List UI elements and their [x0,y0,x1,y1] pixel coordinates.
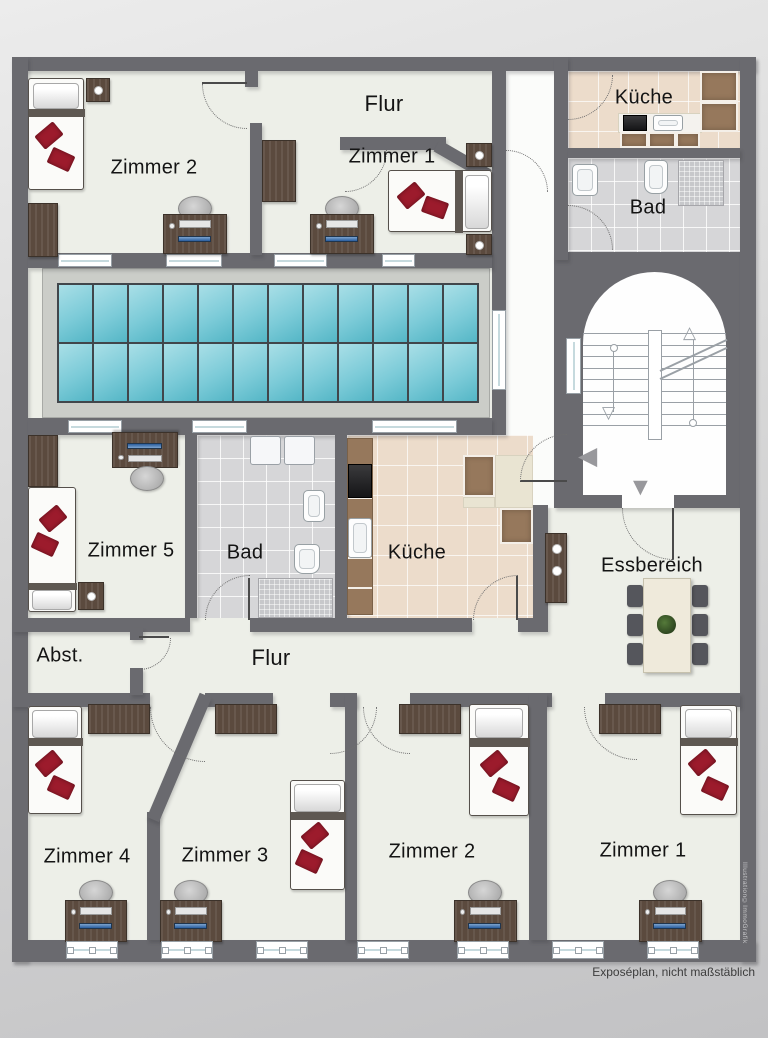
wall [335,435,347,618]
room-label-zimmer2-top: Zimmer 2 [111,157,198,180]
skylight-panel [199,285,232,342]
room-label-bad-mid: Bad [227,542,264,565]
room-label-zimmer1-top: Zimmer 1 [349,146,436,169]
dining-chair [627,585,643,607]
wardrobe [88,704,150,734]
window [256,941,308,959]
kitchen-counter [463,497,495,508]
bed [28,706,82,814]
dining-chair [692,614,708,636]
wall [12,618,190,632]
window [382,254,415,267]
wall [740,57,756,962]
skylight-panel [94,285,127,342]
wall [185,435,197,618]
wall [130,668,143,695]
skylight-panel [339,285,372,342]
shower-icon [678,160,724,206]
stairs-down-arrow-icon: ▽ [602,404,615,421]
wall [250,123,262,255]
toilet-icon [294,544,320,574]
wardrobe [28,203,58,257]
kitchen-cabinet [700,102,738,132]
bed [469,704,529,816]
skylight-panel [339,344,372,401]
stairwell-window [566,338,581,394]
wardrobe [262,140,296,202]
skylight-panel [234,285,267,342]
window [357,941,409,959]
room-label-zimmer2-bottom: Zimmer 2 [389,841,476,864]
floor-plan-page: { "labels": { "flur_top": "Flur", "zimme… [0,0,768,1038]
room-label-abst: Abst. [36,645,83,668]
skylight-panel [304,285,337,342]
bed-rail [29,109,85,117]
room-label-flur-top: Flur [364,91,403,117]
skylight-panel [409,285,442,342]
window [552,941,604,959]
footer-disclaimer: Exposéplan, nicht maßstäblich [592,965,755,979]
dining-chair [627,614,643,636]
stair-tread [662,391,726,403]
shower-icon [258,578,333,618]
skylight-panels [57,283,479,403]
stairs-up-arrow-icon: △ [683,324,696,341]
bed-pillow [33,83,79,109]
window [274,254,327,267]
kitchen-cabinet [676,132,700,148]
bed-pillow [475,708,523,738]
nightstand [466,143,492,167]
entrance-left-arrow-icon: ◀ [578,444,597,469]
room-label-zimmer1-bottom: Zimmer 1 [600,840,687,863]
desk [65,900,127,942]
stair-start-circle [689,419,697,427]
stair-tread [583,414,648,426]
bed-pillow [685,709,732,738]
bed-rail [681,738,738,746]
bath-sink-icon [303,490,325,522]
bed-rail [455,171,463,233]
window-row [0,941,768,961]
skylight-panel [409,344,442,401]
skylight-panel [164,285,197,342]
window [192,420,247,433]
stair-tread [583,402,648,414]
bed [388,170,492,232]
room-label-kueche-top: Küche [615,87,673,110]
red-pillow [295,849,324,875]
window [372,420,457,433]
wall [518,618,548,632]
window [161,941,213,959]
dining-chair [627,643,643,665]
bed-rail [29,583,77,590]
bed [290,780,345,890]
red-pillow [38,504,67,532]
desk [310,214,374,254]
toilet-icon [644,160,668,194]
wall [529,693,547,940]
stair-tread [583,333,648,345]
kitchen-cabinet [648,132,676,148]
skylight-panel [94,344,127,401]
stair-tread [662,379,726,391]
desk [454,900,517,942]
window [457,941,509,959]
window [647,941,699,959]
skylight-panel [444,285,477,342]
wall [147,812,160,940]
window [492,310,506,390]
skylight-panel [269,344,302,401]
room-label-zimmer4: Zimmer 4 [44,846,131,869]
washing-machine-icon [250,436,281,465]
red-pillow [687,748,716,776]
room-label-zimmer5: Zimmer 5 [88,540,175,563]
stair-tread [662,425,726,437]
bed [28,78,84,190]
bed [680,705,737,815]
bed-pillow [32,710,78,738]
skylight-panel [304,344,337,401]
stove-icon [623,115,647,131]
stair-tread [583,425,648,437]
sideboard [545,533,567,603]
skylight-panel [129,344,162,401]
entrance-down-arrow-icon: ▼ [628,475,653,500]
illustration-credit: Illustration©ImmoGrafik [741,862,748,942]
skylight-panel [164,344,197,401]
wall [568,148,740,158]
wall [12,57,28,962]
bed-rail [291,812,346,820]
wall [250,618,472,632]
stair-tread [662,402,726,414]
wall [12,57,756,71]
red-pillow [300,821,329,849]
washing-machine-icon [284,436,315,465]
skylight-panel [234,344,267,401]
window [166,254,222,267]
nightstand [86,78,110,102]
bed [28,487,76,612]
desk [163,214,227,254]
kitchen-cabinet [620,132,648,148]
red-pillow [421,195,449,219]
stair-tread [583,379,648,391]
stair-guide-line [693,340,694,420]
stove-icon [348,464,372,498]
room-label-zimmer3: Zimmer 3 [182,845,269,868]
skylight-panel [59,285,92,342]
stair-stringer [648,330,662,440]
red-pillow [47,775,76,801]
kitchen-cabinet [463,455,495,497]
skylight-panel [129,285,162,342]
red-pillow [47,147,76,173]
bed-rail [470,738,530,747]
room-label-essbereich: Essbereich [601,555,703,578]
red-pillow [492,777,521,803]
window [58,254,112,267]
bath-sink-icon [572,164,598,196]
bed-pillow [294,784,341,812]
red-pillow [396,181,425,209]
stair-tread [583,368,648,380]
kitchen-cabinet [500,508,533,544]
skylight-panel [59,344,92,401]
bed-pillow [465,175,489,229]
nightstand [78,582,104,610]
dining-chair [692,585,708,607]
bed-rail [29,738,83,746]
red-pillow [34,749,63,777]
stair-tread [583,391,648,403]
plant-icon [657,615,676,634]
skylight-panel [444,344,477,401]
red-pillow [31,532,60,558]
stair-start-circle [610,344,618,352]
skylight-panel [269,285,302,342]
red-pillow [34,121,63,149]
skylight-panel [199,344,232,401]
skylight-panel [374,285,407,342]
wall [554,57,568,260]
stair-tread [583,356,648,368]
desk [160,900,222,942]
window [66,941,118,959]
room-label-flur-mid: Flur [251,645,290,671]
kitchen-sink-icon [348,518,372,558]
red-pillow [479,749,508,777]
dining-chair [692,643,708,665]
kitchen-sink-icon [653,115,683,131]
nightstand [466,234,492,255]
skylight-panel [374,344,407,401]
wardrobe [28,435,58,487]
red-pillow [701,776,730,802]
bed-pillow [32,590,72,610]
desk [112,432,178,468]
kitchen-cabinet [700,71,738,102]
wardrobe [215,704,277,734]
room-label-kueche-mid: Küche [388,542,446,565]
desk-chair [130,466,164,491]
desk [639,900,702,942]
room-label-bad-top: Bad [630,197,667,220]
